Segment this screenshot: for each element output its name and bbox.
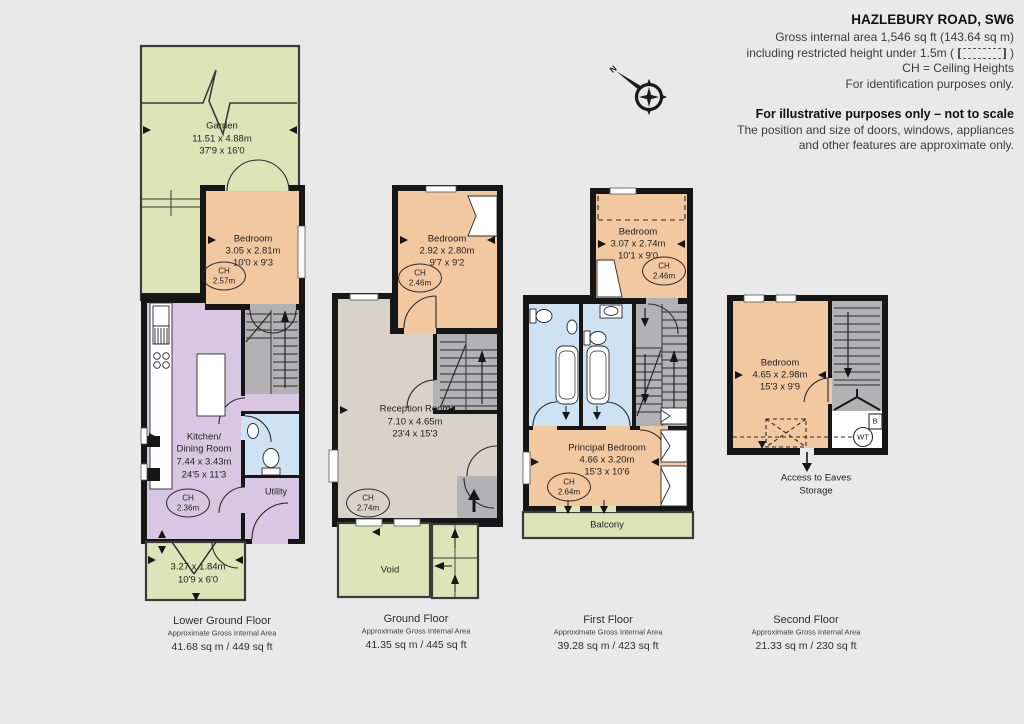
lg-bedroom-door-opening [250,304,296,310]
lg-bedroom-metric: 3.05 x 2.81m [226,246,281,256]
gf-caption-area: 41.35 sq m / 445 sq ft [366,639,467,651]
balcony-name: Balcony [590,520,624,530]
garden-name: Garden [206,121,238,131]
garden-metric: 11.51 x 4.88m [192,134,252,144]
wc-door-opening [241,416,245,440]
principal-bedroom-imperial: 15'3 x 10'6 [584,467,629,477]
basin-icon [567,320,577,334]
compass-icon [616,71,667,115]
window [523,452,530,484]
gf-bedroom-metric: 2.92 x 2.80m [420,246,475,256]
plan-second [727,295,888,472]
toilet-icon [536,310,552,323]
gf-bedroom-name: Bedroom [428,234,467,244]
property-title: HAZLEBURY ROAD, SW6 [737,11,1014,29]
window [141,464,147,480]
patio-metric: 3.27 x 1.84m [171,562,226,572]
sf-bedroom-metric: 4.65 x 2.98m [753,370,808,380]
gross-area-text: Gross internal area 1,546 sq ft (143.64 … [737,30,1014,46]
basin-icon [604,307,618,316]
kitchen-ch-badge: CH 2.36m [166,489,210,518]
eaves-access-line1: Access to Eaves [781,473,851,483]
window [394,519,420,526]
toilet-icon [263,449,279,468]
ch-legend-text: CH = Ceiling Heights [737,61,1014,77]
kitchen-counter-icon [150,303,172,489]
ff-wardrobes-icon [661,408,687,506]
ff-caption-subtitle: Approximate Gross Internal Area [554,628,663,637]
wc-bottom-wall [245,475,299,478]
bathroom2-door-opening [606,426,630,430]
toilet-icon [590,332,606,345]
french-door-opening [225,185,289,191]
restricted-height-symbol [958,48,1006,59]
garden-imperial: 37'9 x 16'0 [199,146,244,156]
void-name: Void [381,565,400,575]
window [426,186,456,192]
plan-ground [329,185,503,598]
hob-icon [154,353,161,360]
window [350,294,378,300]
disclaimer-line1: The position and size of doors, windows,… [737,123,1014,139]
reception-name: Reception Room [380,404,451,414]
sf-caption-area: 21.33 sq m / 230 sq ft [756,640,857,652]
principal-door-opening [640,426,668,430]
utility-name: Utility [265,488,287,497]
gf-caption-subtitle: Approximate Gross Internal Area [362,627,471,636]
sf-bedroom-door-opening [828,378,832,404]
floorplan-page: HAZLEBURY ROAD, SW6 Gross internal area … [0,0,1024,724]
window [329,450,338,482]
lg-caption-title: Lower Ground Floor [173,615,271,627]
reception-imperial: 23'4 x 15'3 [392,429,437,439]
kitchen-name-line1: Kitchen/ [187,432,221,442]
ff-bedroom-name: Bedroom [619,227,658,237]
void-area [338,523,430,597]
reception-ch-badge: CH 2.74m [346,489,390,518]
sf-caption-title: Second Floor [773,614,838,626]
lg-bedroom-ch-badge: CH 2.57m [202,262,246,291]
sink-icon [153,306,169,326]
wall-pier [147,468,160,481]
eaves-arrowhead [802,463,812,472]
disclaimer-line2: and other features are approximate only. [737,138,1014,154]
window [298,226,305,278]
sf-caption-subtitle: Approximate Gross Internal Area [752,628,861,637]
patio-imperial: 10'9 x 6'0 [178,575,218,585]
sf-bedroom-imperial: 15'3 x 9'9 [760,382,800,392]
identification-text: For identification purposes only. [737,77,1014,93]
eaves-access-line2: Storage [799,486,832,496]
gf-caption-title: Ground Floor [384,613,449,625]
bathroom1-door-opening [533,426,557,430]
gf-bedroom-ch-badge: CH 2.46m [398,264,442,293]
illustrative-text: For illustrative purposes only – not to … [737,106,1014,123]
kitchen-island [197,354,225,416]
kitchen-imperial: 24'5 x 11'3 [182,470,227,480]
boiler-label: B [872,417,877,426]
window [744,295,764,302]
ff-bedroom-ch-badge: CH 2.46m [642,257,686,286]
header-block: HAZLEBURY ROAD, SW6 Gross internal area … [737,11,1014,154]
basin-icon [248,424,259,439]
gf-bedroom-door-opening [404,328,436,334]
principal-bedroom-metric: 4.66 x 3.20m [580,455,635,465]
lg-caption-area: 41.68 sq m / 449 sq ft [172,641,273,653]
ff-caption-area: 39.28 sq m / 423 sq ft [558,640,659,652]
lg-entrance-opening [252,539,288,544]
ff-caption-title: First Floor [583,614,633,626]
principal-bedroom-name: Principal Bedroom [568,443,646,453]
ff-bedroom-metric: 3.07 x 2.74m [611,239,666,249]
water-tank-label: WT [857,433,869,442]
kitchen-metric: 7.44 x 3.43m [177,457,232,467]
window [141,428,147,444]
gf-stairs-floor [437,334,497,410]
principal-ch-badge: CH 2.64m [547,473,591,502]
lg-bedroom-name: Bedroom [234,234,273,244]
lg-corridor-floor [245,394,299,413]
kitchen-name-line2: Dining Room [177,444,232,454]
window [610,188,636,194]
window [776,295,796,302]
utility-door-opening [241,487,245,513]
lg-caption-subtitle: Approximate Gross Internal Area [168,629,277,638]
ff-bedroom-door-opening [646,298,678,304]
sf-bedroom-name: Bedroom [761,358,800,368]
window [356,519,382,526]
restricted-height-text: including restricted height under 1.5m (… [737,46,1014,62]
reception-metric: 7.10 x 4.65m [388,417,443,427]
wc-top-wall [245,411,299,414]
